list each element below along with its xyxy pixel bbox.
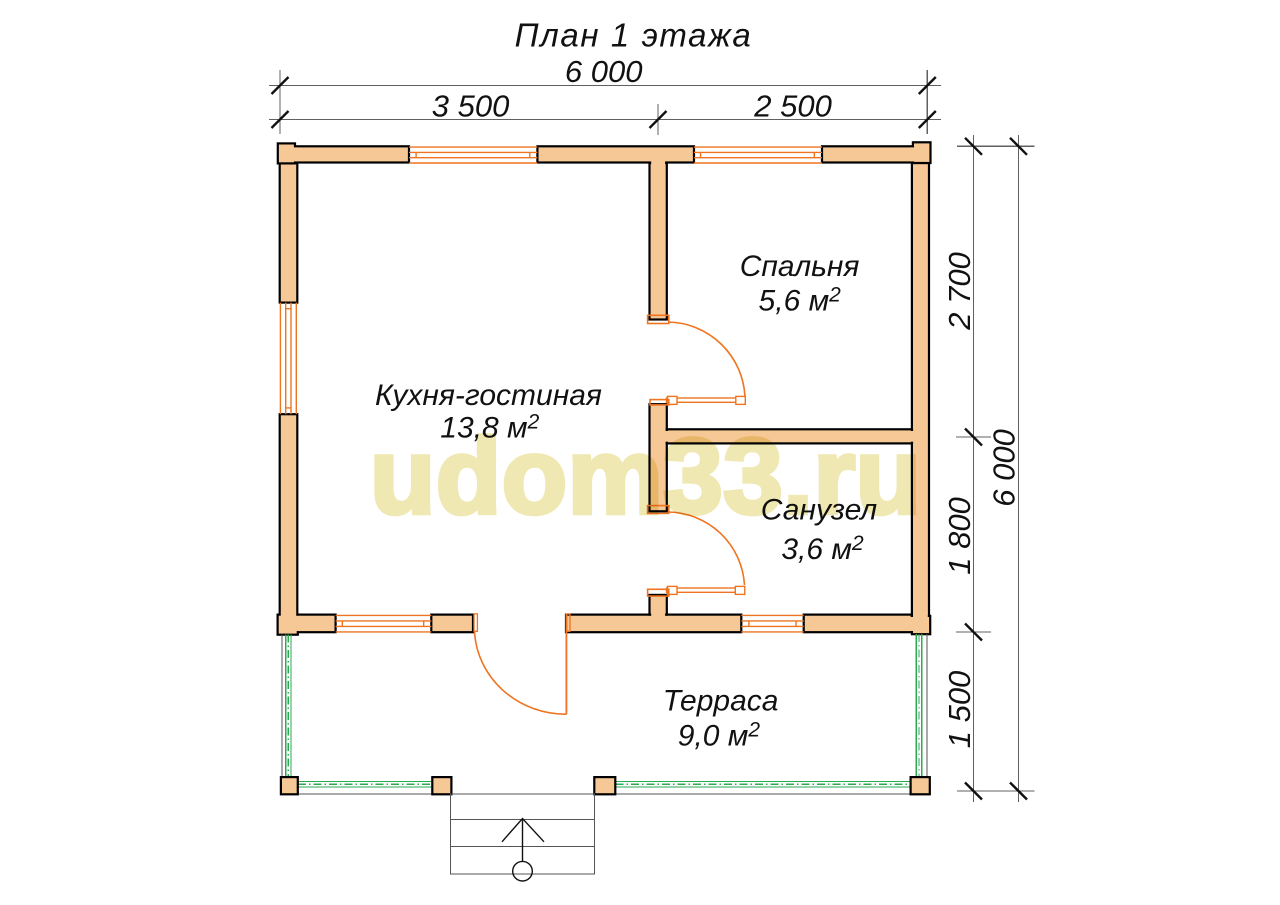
svg-text:3,6 м2: 3,6 м2 [781, 532, 864, 566]
svg-text:Кухня-гостиная: Кухня-гостиная [375, 379, 602, 412]
svg-text:План 1 этажа: План 1 этажа [515, 16, 753, 53]
svg-text:1 500: 1 500 [942, 671, 977, 749]
svg-text:5,6 м2: 5,6 м2 [759, 284, 842, 318]
svg-text:udom33.ru: udom33.ru [370, 416, 921, 536]
svg-text:6 000: 6 000 [987, 429, 1022, 507]
svg-text:6 000: 6 000 [565, 54, 643, 89]
svg-text:Спальня: Спальня [740, 250, 860, 283]
svg-text:Терраса: Терраса [663, 684, 779, 717]
svg-text:1 800: 1 800 [942, 497, 977, 575]
svg-text:9,0 м2: 9,0 м2 [678, 719, 761, 753]
svg-text:3 500: 3 500 [432, 89, 510, 124]
svg-text:2 500: 2 500 [753, 89, 832, 124]
svg-text:2 700: 2 700 [942, 252, 977, 331]
